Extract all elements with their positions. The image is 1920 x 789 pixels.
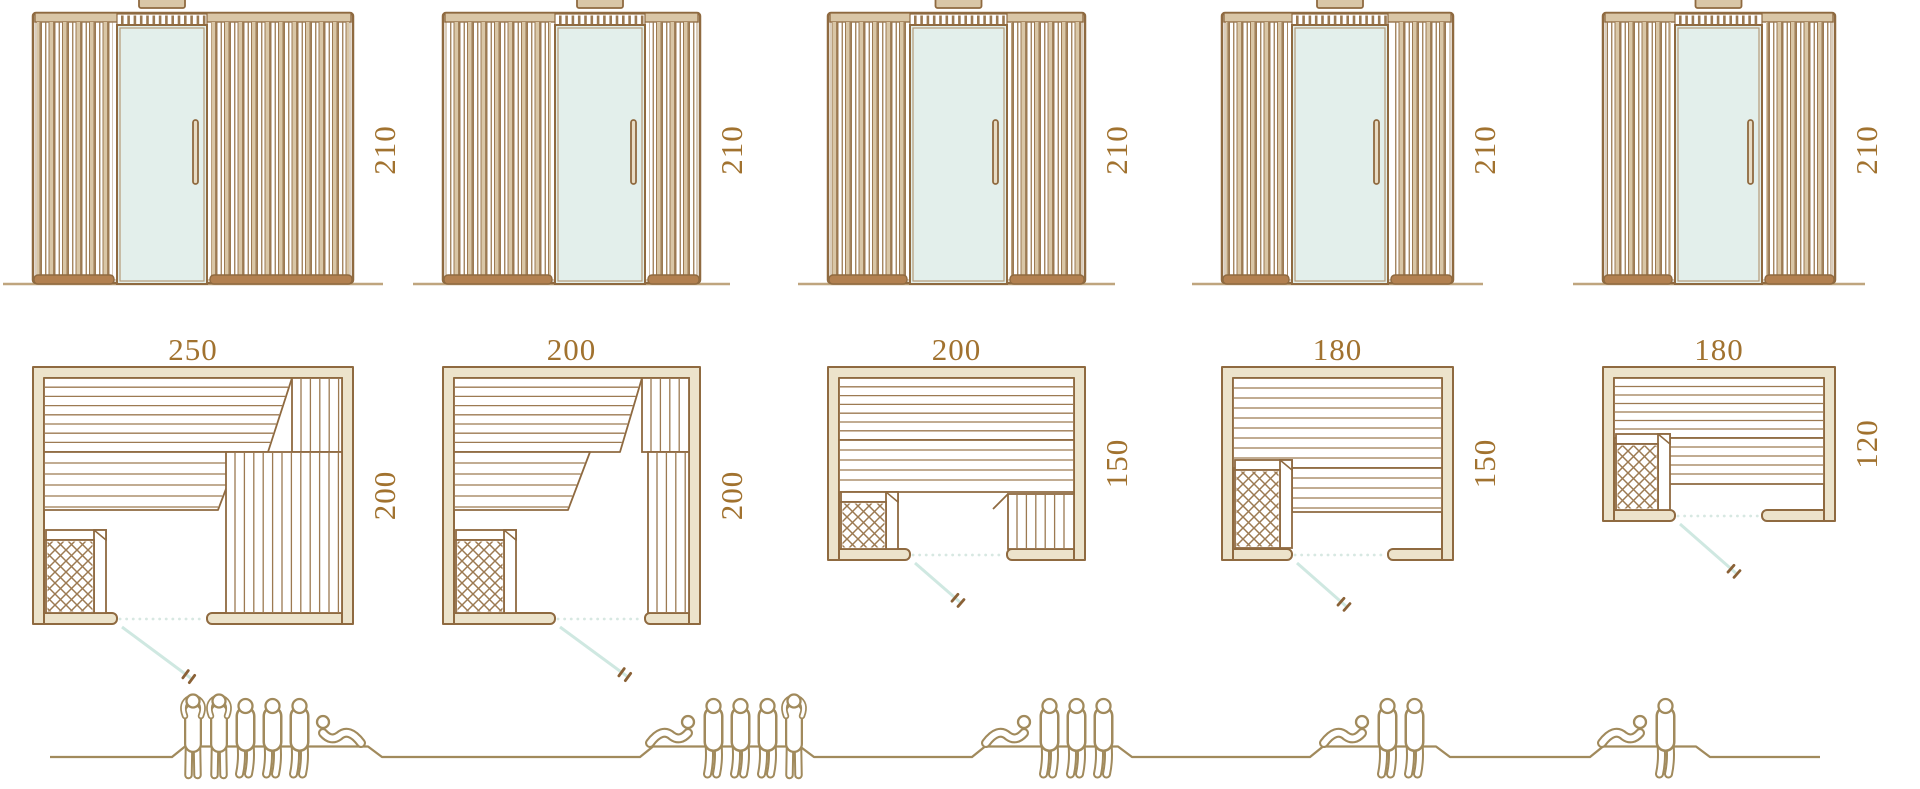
capacity-group-sauna-200x200 bbox=[650, 695, 804, 776]
floor-plan-sauna-180x120: 180120 bbox=[1603, 332, 1884, 577]
vent-tick bbox=[1346, 16, 1349, 25]
vent-tick bbox=[1704, 16, 1707, 25]
vent-tick bbox=[171, 16, 174, 25]
elevation-height-label: 210 bbox=[1099, 125, 1134, 175]
head bbox=[1018, 716, 1030, 728]
heater-grid bbox=[843, 504, 885, 548]
elevation-view-sauna-200x200: 210 bbox=[413, 0, 749, 284]
bench-edge bbox=[1233, 378, 1442, 468]
bench-horizontal bbox=[454, 452, 590, 510]
vent-tick bbox=[983, 16, 986, 25]
vent-tick bbox=[927, 16, 930, 25]
plan-width-label: 200 bbox=[547, 332, 597, 367]
vent-tick bbox=[1729, 16, 1732, 25]
vent-tick bbox=[140, 16, 143, 25]
vent-tick bbox=[565, 16, 568, 25]
person-sitting-icon bbox=[293, 699, 307, 774]
vent-tick bbox=[121, 16, 124, 25]
elevation-view-sauna-200x150: 210 bbox=[798, 0, 1134, 284]
vent-tick bbox=[572, 16, 575, 25]
vent-tick bbox=[584, 16, 587, 25]
head bbox=[187, 695, 200, 708]
vent-tick bbox=[990, 16, 993, 25]
person-sitting-icon bbox=[734, 699, 748, 774]
heater-icon bbox=[456, 530, 516, 613]
floor-plan-sauna-180x150: 180150 bbox=[1222, 332, 1502, 610]
wall-slats-right bbox=[1011, 22, 1081, 276]
plan-depth-label: 200 bbox=[714, 471, 749, 521]
vent-tick bbox=[1365, 16, 1368, 25]
base-plinth-right bbox=[1391, 275, 1452, 284]
vent-tick bbox=[609, 16, 612, 25]
wall-slats-left bbox=[447, 22, 551, 276]
chimney-vent bbox=[139, 0, 185, 8]
head bbox=[1634, 716, 1646, 728]
heater-icon bbox=[46, 530, 106, 613]
vent-tick bbox=[628, 16, 631, 25]
vent-tick bbox=[616, 16, 619, 25]
head bbox=[682, 716, 694, 728]
vent-tick bbox=[996, 16, 999, 25]
plan-width-label: 180 bbox=[1313, 332, 1363, 367]
vent-tick bbox=[622, 16, 625, 25]
bench-vertical bbox=[226, 452, 342, 613]
wall-bottom-left bbox=[33, 613, 117, 624]
vent-tick bbox=[1698, 16, 1701, 25]
mitre-line bbox=[993, 494, 1008, 509]
head bbox=[213, 695, 226, 708]
base-plinth-left bbox=[1223, 275, 1289, 284]
elevation-height-label: 210 bbox=[367, 125, 402, 175]
base-plinth-left bbox=[34, 275, 114, 284]
vent-tick bbox=[559, 16, 562, 25]
door-handle-icon bbox=[631, 120, 636, 184]
elevation-height-label: 210 bbox=[714, 125, 749, 175]
door-handle-icon bbox=[1374, 120, 1379, 184]
wall-slats-left bbox=[1607, 22, 1671, 276]
vent-tick bbox=[127, 16, 130, 25]
wall-slats-left bbox=[1226, 22, 1288, 276]
vent-strip bbox=[555, 14, 645, 25]
chimney-vent bbox=[936, 0, 982, 8]
vent-tick bbox=[578, 16, 581, 25]
elevation-height-label: 210 bbox=[1849, 125, 1884, 175]
vent-tick bbox=[946, 16, 949, 25]
vent-tick bbox=[1755, 16, 1758, 25]
head bbox=[239, 699, 253, 713]
bench-horizontal bbox=[454, 378, 642, 452]
bench-vertical bbox=[648, 452, 689, 613]
heater-grid bbox=[1237, 472, 1279, 547]
door-swing-line bbox=[560, 627, 628, 677]
plan-depth-label: 150 bbox=[1467, 439, 1502, 489]
head bbox=[1356, 716, 1368, 728]
vent-tick bbox=[971, 16, 974, 25]
head bbox=[1043, 699, 1057, 713]
ground-line bbox=[50, 747, 1820, 758]
bench-edge bbox=[1292, 468, 1442, 512]
vent-tick bbox=[190, 16, 193, 25]
vent-tick bbox=[184, 16, 187, 25]
person-standing-icon bbox=[183, 695, 202, 776]
floor-plan-sauna-250x200: 250200 bbox=[33, 332, 402, 683]
bench-edge bbox=[44, 452, 240, 510]
bench-vertical bbox=[993, 494, 1074, 549]
wall-bottom-left bbox=[443, 613, 555, 624]
head bbox=[1381, 699, 1395, 713]
vent-tick bbox=[1340, 16, 1343, 25]
sauna-size-diagram: 2102502002102002002102001502101801502101… bbox=[0, 0, 1920, 789]
floor-plan-sauna-200x150: 200150 bbox=[828, 332, 1134, 606]
door-handle-icon bbox=[993, 120, 998, 184]
vent-tick bbox=[1679, 16, 1682, 25]
plan-width-label: 200 bbox=[932, 332, 982, 367]
vent-tick bbox=[1309, 16, 1312, 25]
vent-tick bbox=[203, 16, 206, 25]
bench-edge bbox=[839, 440, 1074, 492]
heater-icon bbox=[1235, 460, 1292, 548]
wall-slats-right bbox=[1766, 22, 1831, 276]
vent-tick bbox=[1321, 16, 1324, 25]
head bbox=[1097, 699, 1111, 713]
elevation-view-sauna-180x150: 210 bbox=[1192, 0, 1502, 284]
glass-door bbox=[555, 25, 645, 284]
head bbox=[788, 695, 801, 708]
heater-grid bbox=[1618, 446, 1657, 509]
head bbox=[707, 699, 721, 713]
vent-tick bbox=[1353, 16, 1356, 25]
person-sitting-icon bbox=[1659, 699, 1673, 774]
vent-tick bbox=[178, 16, 181, 25]
bench-horizontal bbox=[44, 378, 292, 452]
head bbox=[761, 699, 775, 713]
head bbox=[1408, 699, 1422, 713]
base-plinth-left bbox=[444, 275, 552, 284]
person-sitting-icon bbox=[1408, 699, 1422, 774]
vent-tick bbox=[1378, 16, 1381, 25]
chimney-vent bbox=[577, 0, 623, 8]
vent-tick bbox=[1723, 16, 1726, 25]
person-sitting-icon bbox=[1097, 699, 1111, 774]
plan-depth-label: 150 bbox=[1099, 439, 1134, 489]
head bbox=[266, 699, 280, 713]
vent-tick bbox=[914, 16, 917, 25]
bench-horizontal bbox=[1233, 378, 1442, 468]
vent-tick bbox=[939, 16, 942, 25]
bench-edge bbox=[226, 452, 342, 613]
vent-tick bbox=[1002, 16, 1005, 25]
wall-slats-right bbox=[649, 22, 696, 276]
door-handle-icon bbox=[1748, 120, 1753, 184]
vent-tick bbox=[964, 16, 967, 25]
base-plinth-right bbox=[648, 275, 699, 284]
glass-door bbox=[910, 25, 1007, 284]
elevation-view-sauna-250x200: 210 bbox=[3, 0, 402, 284]
plan-depth-label: 120 bbox=[1849, 419, 1884, 469]
door-handle-icon bbox=[193, 120, 198, 184]
heater-rim-right bbox=[94, 530, 106, 613]
wall-bottom-right bbox=[207, 613, 353, 624]
vent-tick bbox=[1748, 16, 1751, 25]
plan-width-label: 180 bbox=[1694, 332, 1744, 367]
vent-tick bbox=[1692, 16, 1695, 25]
vent-tick bbox=[1302, 16, 1305, 25]
vent-tick bbox=[197, 16, 200, 25]
person-sitting-icon bbox=[239, 699, 253, 774]
plan-depth-label: 200 bbox=[367, 471, 402, 521]
person-standing-icon bbox=[784, 695, 803, 776]
bench-horizontal bbox=[1292, 468, 1442, 512]
heater-rim-right bbox=[1280, 460, 1292, 548]
person-standing-icon bbox=[209, 695, 228, 776]
wall-slats-left bbox=[37, 22, 113, 276]
head bbox=[1659, 699, 1673, 713]
vent-tick bbox=[159, 16, 162, 25]
bench-horizontal bbox=[44, 452, 240, 510]
wall-bottom-left bbox=[828, 549, 910, 560]
person-lying-icon bbox=[1602, 716, 1646, 743]
capacity-group-sauna-200x150 bbox=[986, 699, 1111, 774]
base-plinth-left bbox=[1604, 275, 1672, 284]
head bbox=[1070, 699, 1084, 713]
vent-tick bbox=[1328, 16, 1331, 25]
door-swing-line bbox=[1680, 524, 1737, 574]
person-lying-icon bbox=[317, 716, 361, 743]
bench-horizontal bbox=[839, 378, 1074, 440]
bench-horizontal bbox=[1660, 438, 1824, 484]
person-sitting-icon bbox=[761, 699, 775, 774]
door-swing-line bbox=[1297, 563, 1347, 607]
heater-icon bbox=[1616, 434, 1670, 510]
vent-tick bbox=[1359, 16, 1362, 25]
person-lying-icon bbox=[1324, 716, 1368, 743]
person-sitting-icon bbox=[1043, 699, 1057, 774]
capacity-group-sauna-250x200 bbox=[183, 695, 361, 776]
heater-rim-right bbox=[504, 530, 516, 613]
bench-vertical bbox=[642, 378, 689, 452]
base-plinth-right bbox=[210, 275, 352, 284]
chimney-vent bbox=[1696, 0, 1742, 8]
vent-tick bbox=[1315, 16, 1318, 25]
bench-vertical bbox=[292, 378, 342, 452]
plan-width-label: 250 bbox=[168, 332, 218, 367]
head bbox=[734, 699, 748, 713]
vent-tick bbox=[165, 16, 168, 25]
vent-tick bbox=[153, 16, 156, 25]
bench-edge bbox=[292, 378, 342, 452]
vent-tick bbox=[597, 16, 600, 25]
vent-tick bbox=[933, 16, 936, 25]
heater-grid bbox=[458, 542, 503, 612]
bench-horizontal bbox=[1614, 378, 1824, 438]
base-plinth-left bbox=[829, 275, 907, 284]
person-lying-icon bbox=[986, 716, 1030, 743]
glass-door bbox=[117, 25, 207, 284]
door-swing-line bbox=[122, 627, 192, 679]
bench-horizontal bbox=[839, 440, 1074, 492]
vent-tick bbox=[920, 16, 923, 25]
heater-icon bbox=[841, 492, 898, 549]
vent-tick bbox=[1717, 16, 1720, 25]
capacity-group-sauna-180x120 bbox=[1602, 699, 1673, 774]
vent-tick bbox=[635, 16, 638, 25]
vent-tick bbox=[146, 16, 149, 25]
wall-slats-right bbox=[1392, 22, 1449, 276]
vent-tick bbox=[1296, 16, 1299, 25]
glass-door bbox=[1292, 25, 1388, 284]
heater-rim-right bbox=[1658, 434, 1670, 510]
vent-tick bbox=[134, 16, 137, 25]
vent-strip bbox=[117, 14, 207, 25]
bench-edge bbox=[642, 378, 689, 452]
wall-slats-right bbox=[211, 22, 349, 276]
vent-tick bbox=[1372, 16, 1375, 25]
wall-slats-left bbox=[832, 22, 906, 276]
base-plinth-right bbox=[1765, 275, 1834, 284]
capacity-group-sauna-180x150 bbox=[1324, 699, 1422, 774]
chimney-vent bbox=[1317, 0, 1363, 8]
person-lying-icon bbox=[650, 716, 694, 743]
vent-tick bbox=[1742, 16, 1745, 25]
vent-tick bbox=[1384, 16, 1387, 25]
vent-tick bbox=[958, 16, 961, 25]
vent-tick bbox=[641, 16, 644, 25]
elevation-height-label: 210 bbox=[1467, 125, 1502, 175]
person-sitting-icon bbox=[266, 699, 280, 774]
person-sitting-icon bbox=[707, 699, 721, 774]
floor-plan-sauna-200x200: 200200 bbox=[443, 332, 749, 681]
vent-tick bbox=[1685, 16, 1688, 25]
vent-tick bbox=[977, 16, 980, 25]
vent-tick bbox=[1334, 16, 1337, 25]
head bbox=[317, 716, 329, 728]
vent-tick bbox=[952, 16, 955, 25]
glass-door bbox=[1675, 25, 1762, 284]
bench-edge bbox=[454, 452, 590, 510]
vent-tick bbox=[1736, 16, 1739, 25]
bench-edge bbox=[1660, 438, 1824, 484]
elevation-view-sauna-180x120: 210 bbox=[1573, 0, 1884, 284]
vent-tick bbox=[603, 16, 606, 25]
diagram-canvas: 2102502002102002002102001502101801502101… bbox=[0, 0, 1920, 789]
person-sitting-icon bbox=[1381, 699, 1395, 774]
vent-tick bbox=[591, 16, 594, 25]
bench-edge bbox=[648, 452, 689, 613]
head bbox=[293, 699, 307, 713]
vent-tick bbox=[1711, 16, 1714, 25]
person-sitting-icon bbox=[1070, 699, 1084, 774]
heater-grid bbox=[48, 542, 93, 612]
base-plinth-right bbox=[1010, 275, 1084, 284]
